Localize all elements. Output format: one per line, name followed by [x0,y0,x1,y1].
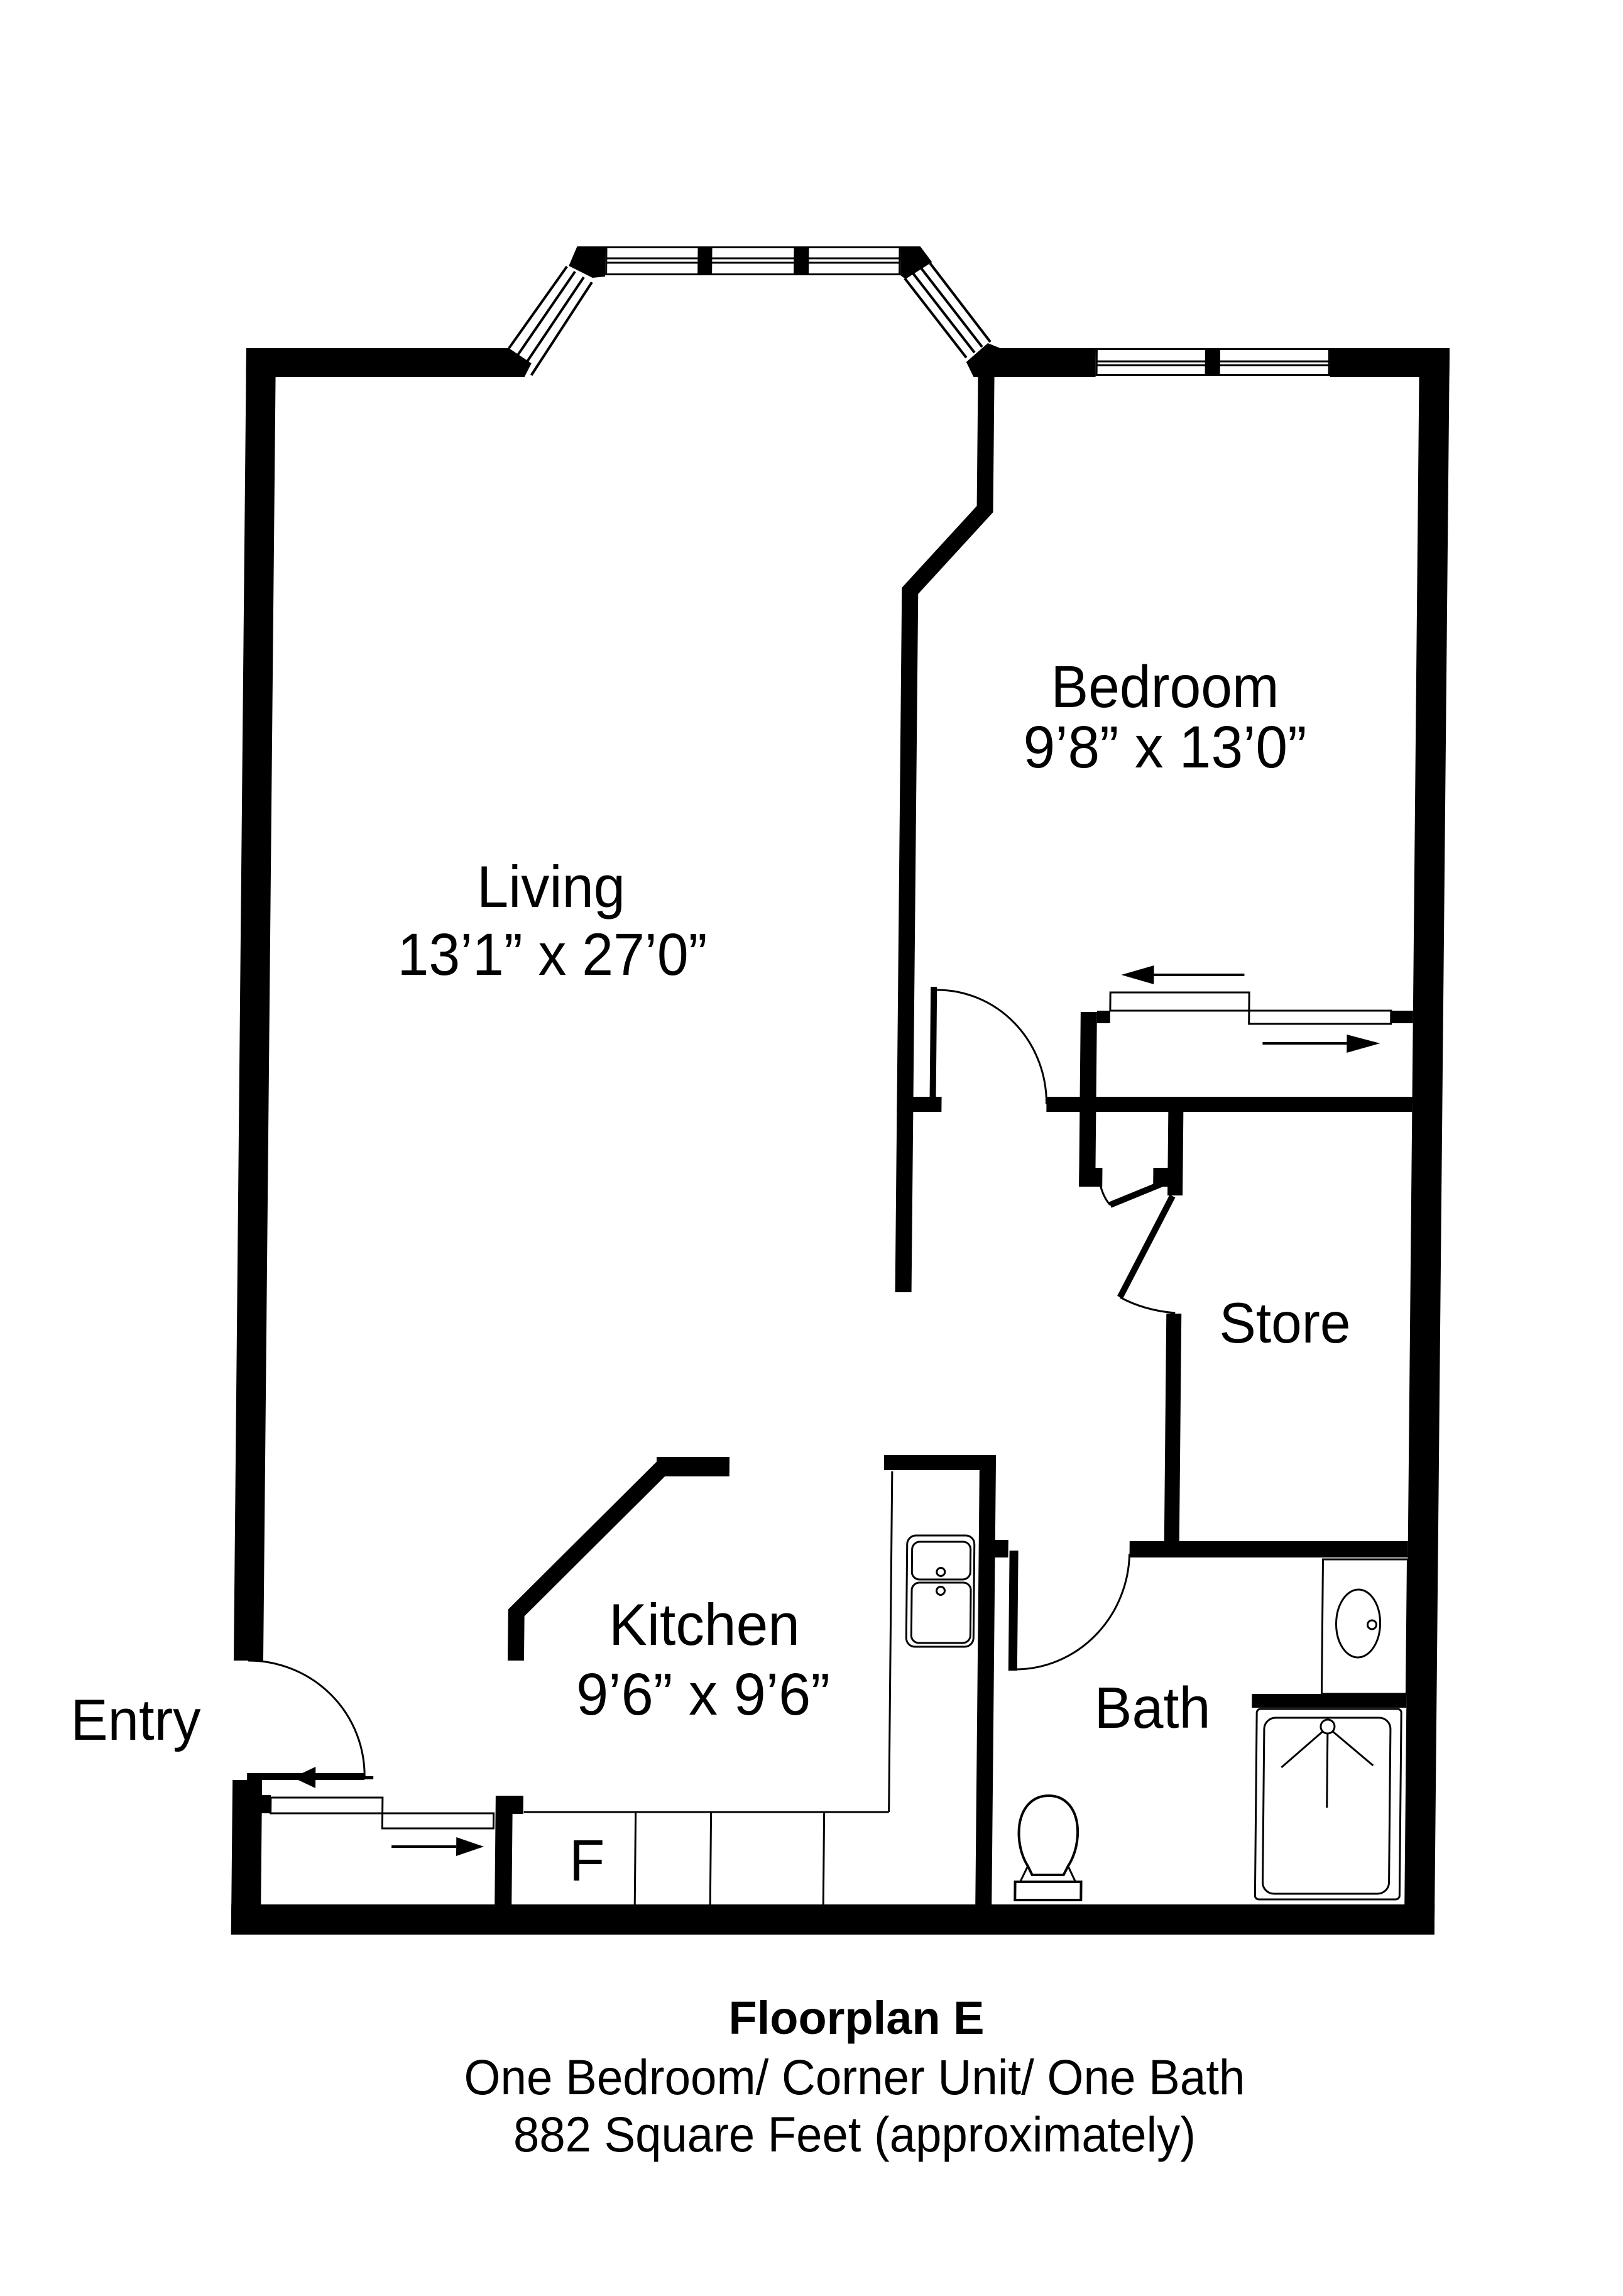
svg-text:882 Square Feet (approximately: 882 Square Feet (approximately) [513,2106,1196,2162]
svg-text:One Bedroom/ Corner Unit/ One: One Bedroom/ Corner Unit/ One Bath [464,2049,1245,2105]
svg-text:Bedroom: Bedroom [1051,654,1279,720]
svg-text:13’1” x 27’0”: 13’1” x 27’0” [398,921,708,988]
svg-text:Store: Store [1220,1292,1351,1355]
svg-text:9’8” x 13’0”: 9’8” x 13’0” [1024,714,1307,781]
svg-text:Living: Living [477,854,625,920]
svg-text:9’6” x 9’6”: 9’6” x 9’6” [576,1661,830,1728]
svg-text:F: F [569,1828,605,1893]
svg-text:Floorplan E: Floorplan E [729,1992,985,2044]
svg-text:Bath: Bath [1095,1675,1211,1740]
svg-text:Kitchen: Kitchen [609,1591,800,1657]
svg-text:Entry: Entry [71,1688,201,1752]
